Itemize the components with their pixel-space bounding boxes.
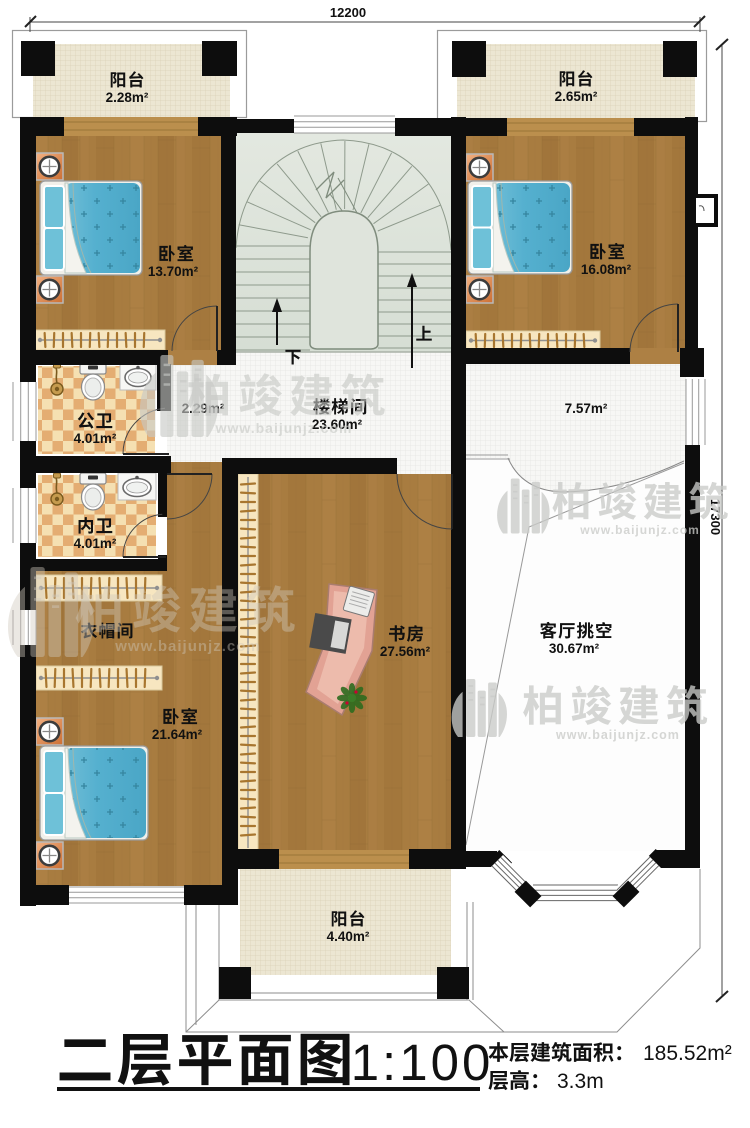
svg-text:4.01m²: 4.01m² bbox=[74, 431, 117, 446]
svg-text:2.28m²: 2.28m² bbox=[106, 90, 149, 105]
svg-text:12200: 12200 bbox=[330, 5, 366, 20]
svg-text:4.40m²: 4.40m² bbox=[327, 929, 370, 944]
svg-text:2.65m²: 2.65m² bbox=[555, 89, 598, 104]
svg-text:13.70m²: 13.70m² bbox=[148, 264, 199, 279]
svg-text:www.baijunjz.com: www.baijunjz.com bbox=[114, 638, 260, 655]
svg-text:www.baijunjz.com: www.baijunjz.com bbox=[579, 523, 700, 537]
svg-text:www.baijunjz.com: www.baijunjz.com bbox=[555, 728, 680, 742]
svg-text:1:100: 1:100 bbox=[351, 1034, 494, 1091]
svg-text:7.57m²: 7.57m² bbox=[565, 401, 608, 416]
svg-text:27.56m²: 27.56m² bbox=[380, 644, 431, 659]
svg-text:3.3m: 3.3m bbox=[557, 1070, 604, 1093]
svg-text:16.08m²: 16.08m² bbox=[581, 262, 632, 277]
svg-text:4.01m²: 4.01m² bbox=[74, 536, 117, 551]
svg-text:30.67m²: 30.67m² bbox=[549, 641, 600, 656]
svg-text:21.64m²: 21.64m² bbox=[152, 727, 203, 742]
svg-text:www.baijunjz.com: www.baijunjz.com bbox=[215, 420, 353, 436]
svg-text:185.52m²: 185.52m² bbox=[643, 1042, 732, 1065]
